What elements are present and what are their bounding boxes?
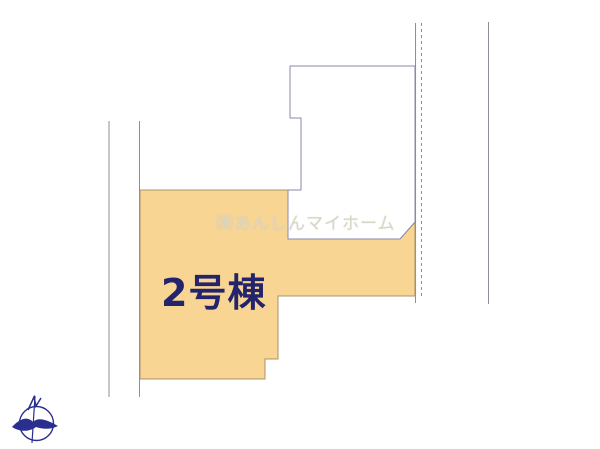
company-watermark: ㈱あんしんマイホーム xyxy=(216,209,396,234)
compass-needle xyxy=(32,396,35,443)
lot-2-label: 2号棟 xyxy=(161,262,266,317)
north-compass-icon xyxy=(12,396,58,443)
compass-bird-shape xyxy=(12,419,58,431)
plan-canvas: ㈱あんしんマイホーム 2号棟 xyxy=(0,0,600,449)
